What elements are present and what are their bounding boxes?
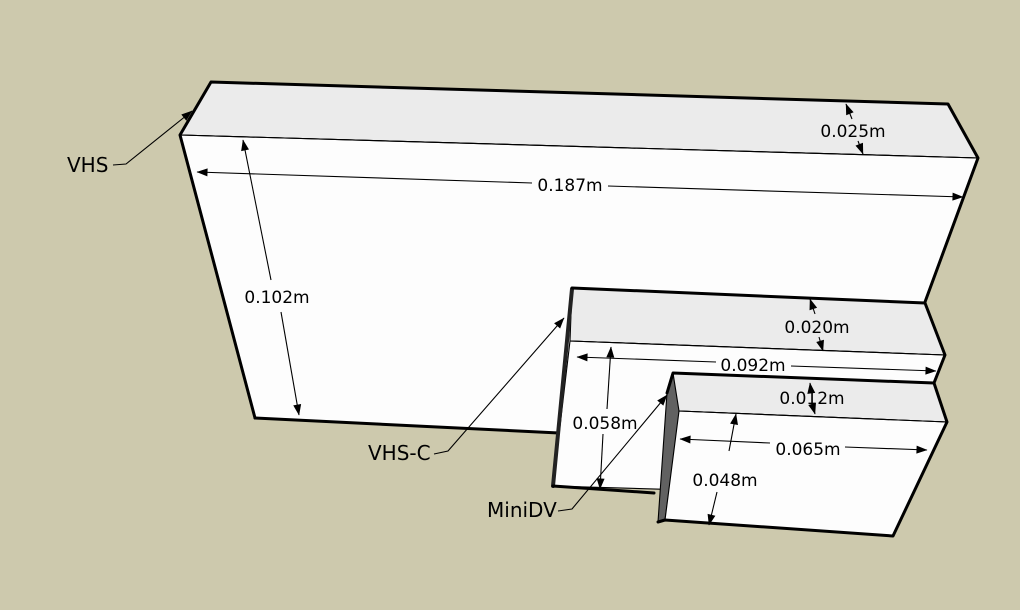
dim-vhs-height-text[interactable]: 0.102m [244, 288, 309, 308]
label-vhsc-text[interactable]: VHS-C [368, 441, 431, 465]
model-viewport: 0.187m 0.102m 0.025m 0.020m 0.092m 0.058… [0, 0, 1020, 610]
dim-vhs-width-text[interactable]: 0.187m [537, 176, 602, 196]
label-minidv-text[interactable]: MiniDV [487, 498, 557, 522]
dim-vhsc-height-text[interactable]: 0.058m [572, 414, 637, 434]
dim-vhs-depth-text[interactable]: 0.025m [820, 122, 885, 142]
dim-minidv-width-text[interactable]: 0.065m [775, 440, 840, 460]
label-vhs-text[interactable]: VHS [67, 153, 108, 177]
dim-minidv-depth-text[interactable]: 0.012m [779, 389, 844, 409]
dim-minidv-height-text[interactable]: 0.048m [692, 471, 757, 491]
drawing-canvas: 0.187m 0.102m 0.025m 0.020m 0.092m 0.058… [0, 0, 1020, 610]
dim-vhsc-width-text[interactable]: 0.092m [720, 356, 785, 376]
dim-vhsc-depth-text[interactable]: 0.020m [784, 318, 849, 338]
